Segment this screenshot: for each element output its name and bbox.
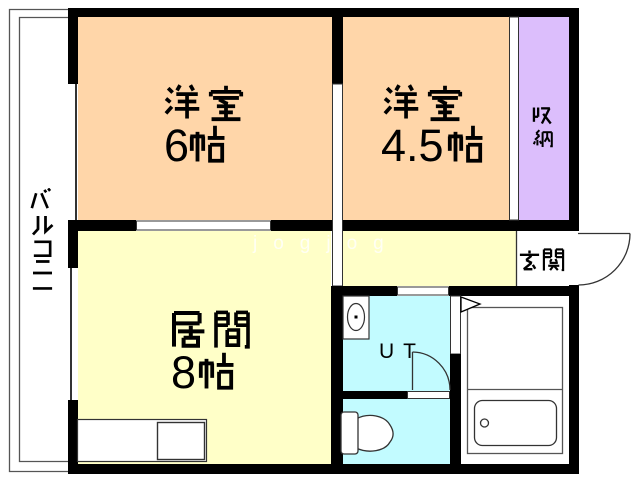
svg-text:jogjog: jogjog — [252, 233, 400, 254]
svg-text:6: 6 — [164, 120, 189, 171]
svg-text:UT: UT — [379, 340, 425, 363]
svg-text:4.5: 4.5 — [381, 120, 444, 171]
svg-text:8: 8 — [171, 347, 196, 398]
